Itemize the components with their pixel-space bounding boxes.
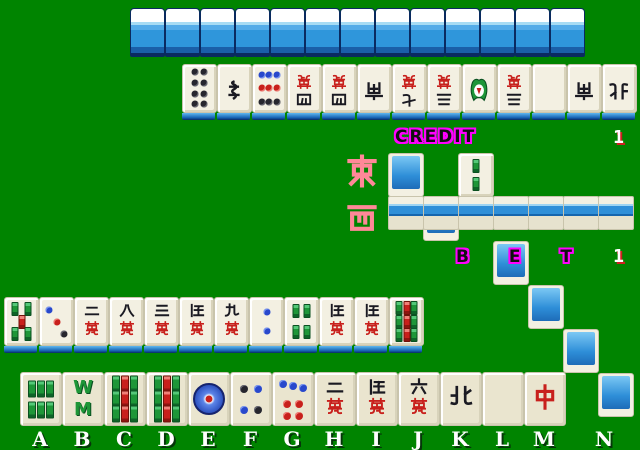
discard-tile-man-5: [354, 297, 389, 353]
bamboo-stick: [154, 406, 162, 423]
tile-front-edge: [532, 113, 565, 120]
chun-kanji-glyph: [531, 377, 559, 421]
bamboo-stick: [28, 380, 36, 397]
man-wan-glyph: [366, 395, 388, 423]
opponent-tile-man-3: [497, 64, 532, 120]
discard-tile-man-9: [214, 297, 249, 353]
bamboo-stick: [403, 328, 410, 342]
hatsu-emblem-glyph: [467, 70, 493, 108]
facedown-tile: [340, 8, 375, 57]
man-wan-glyph: [327, 319, 346, 343]
man-wan-glyph: [82, 319, 101, 343]
bamboo-stick: [473, 159, 480, 173]
bamboo-stick: [410, 328, 417, 342]
opponent-tile-man-7: [392, 64, 427, 120]
bamboo-stick: [112, 406, 120, 423]
circle-pip: [263, 308, 270, 315]
bamboo-stick: [410, 315, 417, 329]
opponent-tile-wind-south: [567, 64, 602, 120]
bamboo-stick: [37, 380, 45, 397]
slot-letter-L[interactable]: L: [482, 427, 522, 450]
circle-pip: [295, 400, 303, 408]
wind-kanji-glyph: [447, 378, 475, 420]
bamboo-stick: [396, 315, 403, 329]
hand-tile-G-pin-7[interactable]: [272, 372, 314, 426]
man-wan-glyph: [152, 319, 171, 343]
circle-pip: [191, 101, 198, 108]
man-wan-glyph: [400, 67, 419, 91]
man-wan-glyph: [362, 319, 381, 343]
circle-pip: [295, 412, 303, 420]
bamboo-stick: [403, 315, 410, 329]
circle-pip: [201, 101, 208, 108]
slot-letter-N[interactable]: N: [584, 427, 624, 450]
bamboo-stick: [163, 406, 171, 423]
hand-tile-D-sou-9[interactable]: [146, 372, 188, 426]
discard-tile-man-3: [144, 297, 179, 353]
circle-pip: [266, 72, 273, 79]
opponent-tile-wind-north: [602, 64, 637, 120]
tile-front-edge: [462, 113, 495, 120]
wind-kanji-glyph: [573, 70, 597, 108]
discard-tile-pin-3: [39, 297, 74, 353]
facedown-tile: [165, 8, 200, 57]
tile-front-edge: [214, 346, 247, 353]
tile-front-edge: [39, 346, 72, 353]
dead-wall-lying-tile: [493, 196, 529, 230]
dead-wall-lying-tile: [598, 196, 634, 230]
circle-pip: [46, 307, 53, 314]
opponent-tile-pin-8: [182, 64, 217, 120]
hand-tile-B-sou-8[interactable]: W M: [62, 372, 104, 426]
tile-back-blue: [602, 376, 630, 409]
wind-kanji-glyph: [608, 70, 632, 108]
circle-pip: [299, 384, 307, 392]
opponent-tile-dragon-hatsu: [462, 64, 497, 120]
slot-letter-K[interactable]: K: [440, 427, 480, 450]
facedown-tile: [410, 8, 445, 57]
slot-letter-H[interactable]: H: [314, 427, 354, 450]
facedown-tile: [270, 8, 305, 57]
hand-tile-K-wind-north[interactable]: [440, 372, 482, 426]
circle-pip: [254, 385, 262, 393]
opponent-tile-man-4: [322, 64, 357, 120]
dead-wall-back-tile: [563, 329, 599, 373]
man-wan-glyph: [505, 67, 524, 91]
facedown-tile: [200, 8, 235, 57]
hand-tile-F-pin-4[interactable]: [230, 372, 272, 426]
dead-wall-lying-tile: [528, 196, 564, 230]
tile-front-edge: [497, 113, 530, 120]
man-wan-glyph: [435, 67, 454, 91]
opponent-tile-pin-9: [252, 64, 287, 120]
circle-pip: [283, 412, 291, 420]
tile-front-edge: [389, 346, 422, 353]
opponent-tile-man-4: [287, 64, 322, 120]
circle-pip: [60, 330, 67, 337]
circle-pip: [266, 98, 273, 105]
bamboo-stick: [473, 177, 480, 191]
discard-tile-sou-5: [4, 297, 39, 353]
man-wan-glyph: [324, 395, 346, 423]
tile-front-edge: [284, 346, 317, 353]
circle-pip: [193, 383, 225, 415]
opponent-tile-sou-1: [217, 64, 252, 120]
circle-pip: [201, 69, 208, 76]
circle-pip: [258, 85, 265, 92]
dead-wall-lying-tile: [423, 196, 459, 230]
slot-letter-E[interactable]: E: [188, 427, 228, 450]
dead-wall-back-tile: [528, 285, 564, 329]
bamboo-stick: [396, 301, 403, 315]
hand-tile-A-sou-6[interactable]: [20, 372, 62, 426]
tile-front-edge: [179, 346, 212, 353]
tile-front-edge: [4, 346, 37, 353]
tile-front-edge: [392, 113, 425, 120]
bamboo-stick: [46, 401, 54, 418]
discard-tile-man-8: [109, 297, 144, 353]
man-wan-glyph: [330, 67, 349, 91]
slot-letter-F[interactable]: F: [230, 427, 270, 450]
slot-letter-I[interactable]: I: [356, 427, 396, 450]
circle-pip: [201, 90, 208, 97]
bamboo-stick: [403, 301, 410, 315]
seat-wind-west-marker: [344, 196, 380, 244]
bamboo-stick: [121, 406, 129, 423]
man-wan-glyph: [408, 395, 430, 423]
credit-label: CREDIT: [395, 127, 476, 147]
man-wan-glyph: [295, 67, 314, 91]
tile-front-edge: [602, 113, 635, 120]
tile-front-edge: [354, 346, 387, 353]
tile-front-edge: [217, 113, 250, 120]
bamboo-stick: [25, 302, 32, 316]
dead-wall-lying-tile: [388, 196, 424, 230]
slot-letter-B[interactable]: B: [62, 427, 102, 450]
dead-wall-lying-tile: [563, 196, 599, 230]
hand-tile-I-man-5[interactable]: [356, 372, 398, 426]
tile-back-blue: [567, 332, 595, 365]
circle-pip: [274, 72, 281, 79]
man-wan-glyph: [222, 319, 241, 343]
discard-tile-man-5: [179, 297, 214, 353]
bamboo-stick: [293, 304, 300, 318]
circle-pip: [263, 328, 270, 335]
dead-wall-back-tile: [598, 373, 634, 417]
bamboo-stick: [130, 406, 138, 423]
tile-front-edge: [427, 113, 460, 120]
circle-pip: [191, 69, 198, 76]
dead-wall-lying-tile: [458, 196, 494, 230]
bamboo-stick: [11, 327, 18, 341]
tile-front-edge: [109, 346, 142, 353]
facedown-tile: [550, 8, 585, 57]
circle-pip: [254, 406, 262, 414]
round-wind-east-marker: [344, 149, 380, 197]
tile-front-edge: [322, 113, 355, 120]
slot-letter-A[interactable]: A: [20, 427, 60, 450]
facedown-tile: [515, 8, 550, 57]
circle-pip: [283, 400, 291, 408]
opponent-tile-wind-south: [357, 64, 392, 120]
tile-front-edge: [74, 346, 107, 353]
slot-letter-G[interactable]: G: [272, 427, 312, 450]
circle-pip: [240, 385, 248, 393]
discard-tile-man-2: [74, 297, 109, 353]
hand-tile-J-man-6[interactable]: [398, 372, 440, 426]
circle-pip: [258, 98, 265, 105]
circle-pip: [274, 98, 281, 105]
opponent-tile-blank: [532, 64, 567, 120]
wind-kanji-glyph: [363, 70, 387, 108]
tile-front-edge: [567, 113, 600, 120]
man-wan-glyph: [117, 319, 136, 343]
hand-tile-C-sou-9[interactable]: [104, 372, 146, 426]
bamboo-stick: [25, 327, 32, 341]
discard-tile-pin-2: [249, 297, 284, 353]
facedown-tile: [305, 8, 340, 57]
circle-pip: [266, 85, 273, 92]
slot-letter-M[interactable]: M: [524, 427, 564, 450]
discard-tile-man-5: [319, 297, 354, 353]
mahjong-game-screen: CREDIT 1 B E T 1 W: [0, 0, 640, 450]
tile-front-edge: [182, 113, 215, 120]
circle-pip: [279, 380, 287, 388]
hand-tile-H-man-2[interactable]: [314, 372, 356, 426]
tile-front-edge: [287, 113, 320, 120]
discard-tile-sou-4: [284, 297, 319, 353]
bet-label: B E T: [456, 247, 589, 267]
man-wan-glyph: [187, 319, 206, 343]
circle-pip: [289, 382, 297, 390]
circle-pip: [191, 90, 198, 97]
bamboo-stick: [293, 325, 300, 339]
circle-pip: [191, 79, 198, 86]
hand-tile-L-blank[interactable]: [482, 372, 524, 426]
facedown-tile: [480, 8, 515, 57]
opponent-tile-man-3: [427, 64, 462, 120]
slot-letter-J[interactable]: J: [398, 427, 438, 450]
hand-tile-E-pin-1[interactable]: [188, 372, 230, 426]
dora-indicator-tile-sou-2: [458, 153, 494, 197]
circle-pip: [240, 406, 248, 414]
tile-front-edge: [144, 346, 177, 353]
bamboo-stick: [37, 401, 45, 418]
bamboo-stick: [28, 401, 36, 418]
circle-pip: [274, 85, 281, 92]
circle-pip: [201, 79, 208, 86]
discard-tile-sou-9: [389, 297, 424, 353]
bet-value: 1: [600, 246, 624, 267]
bamboo-stick: [303, 304, 310, 318]
slot-letter-D[interactable]: D: [146, 427, 186, 450]
facedown-tile: [235, 8, 270, 57]
facedown-tile: [375, 8, 410, 57]
tile-back-blue: [392, 156, 420, 189]
facedown-tile: [130, 8, 165, 57]
bamboo-stick: [303, 325, 310, 339]
circle-pip: [53, 318, 60, 325]
facedown-tile: [445, 8, 480, 57]
slot-letter-C[interactable]: C: [104, 427, 144, 450]
tile-front-edge: [319, 346, 352, 353]
tile-front-edge: [252, 113, 285, 120]
credit-value: 1: [600, 127, 624, 148]
tile-front-edge: [249, 346, 282, 353]
bamboo-stick: [46, 380, 54, 397]
tile-back-blue: [532, 288, 560, 321]
bamboo-stick: [410, 301, 417, 315]
bamboo-stick: [172, 406, 180, 423]
circle-pip: [258, 72, 265, 79]
dead-wall-back-tile: [388, 153, 424, 197]
hand-tile-M-dragon-chun[interactable]: [524, 372, 566, 426]
bamboo-stick: [396, 328, 403, 342]
tile-front-edge: [357, 113, 390, 120]
